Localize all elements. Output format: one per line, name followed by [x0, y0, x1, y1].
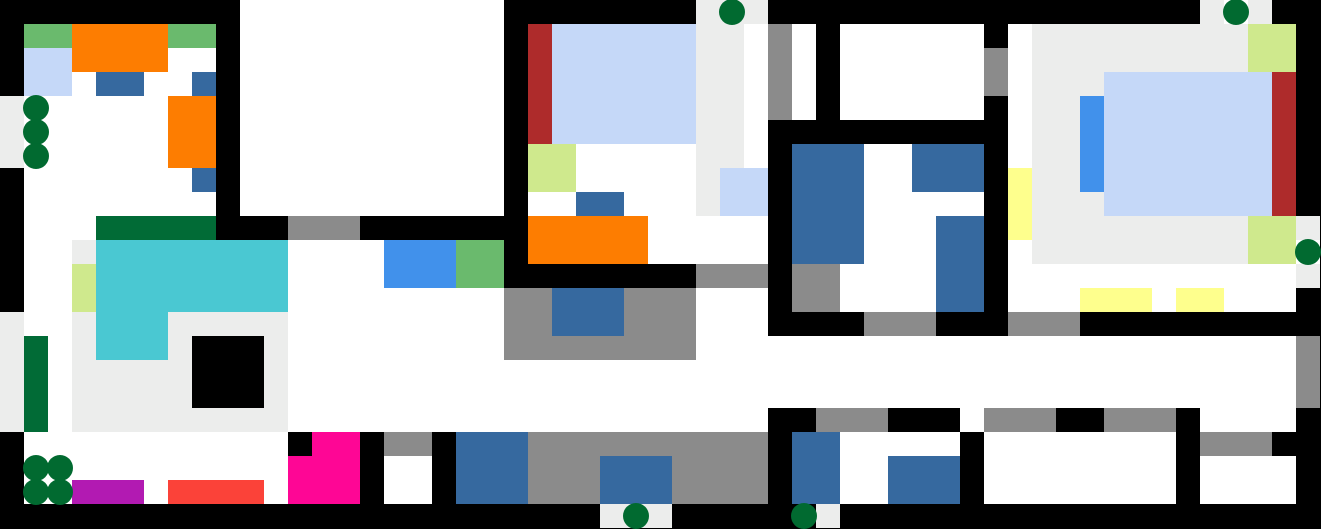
tile-floor-light-gray [1128, 240, 1152, 264]
tile-floor-white [912, 288, 936, 312]
tile-blue-furniture [936, 480, 960, 504]
tile-magenta-furniture [312, 456, 336, 480]
tile-floor-white [264, 72, 288, 96]
tile-gray-rug [648, 312, 672, 336]
tile-floor-white [72, 432, 96, 456]
tile-floor-white [1032, 264, 1056, 288]
tile-floor-white [528, 408, 552, 432]
tile-floor-light-gray [216, 408, 240, 432]
tile-floor-white [216, 432, 240, 456]
tile-floor-white [1080, 384, 1104, 408]
tile-floor-white [504, 384, 528, 408]
tile-gray-rug [600, 432, 624, 456]
tile-floor-white [336, 72, 360, 96]
tile-red-mat [192, 480, 216, 504]
tile-orange-furniture [576, 216, 600, 240]
tile-gray-rug [528, 456, 552, 480]
tile-floor-white [384, 96, 408, 120]
tile-floor-white [120, 96, 144, 120]
tile-floor-white [600, 408, 624, 432]
tile-floor-white [456, 384, 480, 408]
tile-floor-white [648, 360, 672, 384]
tile-blue-furniture [960, 264, 984, 288]
tile-floor-white [312, 0, 336, 24]
tile-gray-rug [1200, 432, 1224, 456]
tile-lavender-bed [24, 72, 48, 96]
tile-floor-white [480, 48, 504, 72]
tile-floor-white [576, 168, 600, 192]
tile-floor-white [1008, 432, 1032, 456]
tile-floor-white [1200, 264, 1224, 288]
tile-floor-white [264, 168, 288, 192]
tree-icon [23, 95, 49, 121]
tile-floor-light-gray [240, 312, 264, 336]
tile-floor-white [1056, 432, 1080, 456]
tile-floor-white [1032, 288, 1056, 312]
tile-floor-light-gray [96, 384, 120, 408]
tile-azure-rug [384, 240, 408, 264]
tile-lavender-bed [1128, 72, 1152, 96]
tile-floor-white [480, 144, 504, 168]
tile-floor-white [432, 144, 456, 168]
tile-floor-white [792, 72, 816, 96]
tile-lavender-bed [1248, 72, 1272, 96]
tile-cyan-pool [240, 264, 264, 288]
tile-floor-white [48, 288, 72, 312]
tile-gray-rug [720, 480, 744, 504]
tile-floor-white [48, 360, 72, 384]
tile-gray-rug [648, 288, 672, 312]
tile-floor-white [864, 336, 888, 360]
tile-floor-light-gray [1200, 0, 1224, 24]
tile-floor-white [528, 192, 552, 216]
tile-maroon-strip [1272, 72, 1296, 96]
tile-floor-white [720, 288, 744, 312]
tile-floor-white [1008, 24, 1032, 48]
tile-floor-light-gray [1176, 24, 1200, 48]
tile-floor-white [312, 96, 336, 120]
tile-lavender-bed [1248, 168, 1272, 192]
tile-floor-white [720, 408, 744, 432]
tile-lavender-bed [1176, 144, 1200, 168]
tile-cyan-pool [96, 240, 120, 264]
tile-floor-light-gray [1056, 120, 1080, 144]
tile-floor-white [432, 360, 456, 384]
tile-floor-light-gray [1128, 216, 1152, 240]
tile-darkgreen-counter [24, 360, 48, 384]
tile-floor-white [48, 96, 72, 120]
tile-maroon-strip [1272, 120, 1296, 144]
tile-floor-white [288, 408, 312, 432]
tile-cyan-pool [240, 240, 264, 264]
tile-floor-white [624, 360, 648, 384]
tile-floor-white [1272, 408, 1296, 432]
tile-floor-light-gray [1152, 48, 1176, 72]
tile-cyan-pool [192, 264, 216, 288]
tile-gray-rug [744, 456, 768, 480]
tile-floor-white [480, 0, 504, 24]
tile-lavender-bed [1176, 72, 1200, 96]
tile-floor-white [240, 432, 264, 456]
tile-blue-furniture [120, 72, 144, 96]
tile-gray-rug [720, 432, 744, 456]
tile-floor-white [1224, 264, 1248, 288]
tile-floor-white [120, 168, 144, 192]
tile-gray-rug [408, 432, 432, 456]
tile-blue-furniture [888, 480, 912, 504]
tile-floor-white [648, 144, 672, 168]
tile-floor-white [408, 456, 432, 480]
tile-floor-light-gray [168, 360, 192, 384]
tile-blue-furniture [840, 216, 864, 240]
tile-azure-rug [432, 264, 456, 288]
tile-blue-furniture [840, 168, 864, 192]
tile-blue-furniture [792, 144, 816, 168]
tile-floor-light-gray [720, 24, 744, 48]
tile-floor-light-gray [696, 168, 720, 192]
tile-blue-furniture [816, 456, 840, 480]
tile-floor-white [144, 456, 168, 480]
tile-palegreen-mat [1272, 24, 1296, 48]
tile-floor-white [72, 72, 96, 96]
tile-floor-white [384, 144, 408, 168]
tile-green-mat [480, 240, 504, 264]
tile-floor-white [120, 432, 144, 456]
tile-floor-white [48, 144, 72, 168]
tile-floor-white [360, 240, 384, 264]
tile-floor-white [1080, 432, 1104, 456]
tile-gray-rug [696, 432, 720, 456]
tile-floor-white [888, 168, 912, 192]
tile-floor-white [1104, 384, 1128, 408]
tile-floor-white [792, 48, 816, 72]
tile-lavender-bed [1224, 144, 1248, 168]
tile-floor-white [264, 144, 288, 168]
tile-lavender-bed [672, 72, 696, 96]
tile-floor-white [408, 96, 432, 120]
tile-cyan-pool [120, 288, 144, 312]
tile-floor-white [912, 384, 936, 408]
tile-floor-white [984, 360, 1008, 384]
tile-floor-white [720, 360, 744, 384]
tile-orange-furniture [576, 240, 600, 264]
tile-floor-light-gray [72, 312, 96, 336]
tile-gray-rug [1296, 336, 1320, 360]
tile-floor-white [864, 456, 888, 480]
tile-lavender-bed [744, 192, 768, 216]
tile-floor-white [408, 480, 432, 504]
floorplan-canvas[interactable] [0, 0, 1321, 529]
tile-lavender-bed [1200, 72, 1224, 96]
tile-palegreen-mat [72, 264, 96, 288]
tile-lavender-bed [1224, 168, 1248, 192]
tile-floor-white [384, 312, 408, 336]
tile-floor-white [696, 240, 720, 264]
tile-palegreen-mat [1248, 216, 1272, 240]
tile-floor-white [288, 192, 312, 216]
tile-blue-furniture [480, 432, 504, 456]
tile-gray-rug [528, 288, 552, 312]
tile-lavender-bed [672, 96, 696, 120]
tile-gray-rug [624, 432, 648, 456]
tile-floor-white [1104, 480, 1128, 504]
tile-gray-rug [1104, 408, 1128, 432]
tile-floor-white [864, 384, 888, 408]
tile-gray-rug [1248, 432, 1272, 456]
tile-cyan-pool [96, 264, 120, 288]
tile-darkgreen-counter [144, 216, 168, 240]
tile-floor-light-gray [1032, 96, 1056, 120]
tile-blue-furniture [576, 192, 600, 216]
tile-floor-light-gray [1056, 96, 1080, 120]
tile-floor-white [816, 336, 840, 360]
tile-floor-white [888, 144, 912, 168]
tile-floor-white [648, 408, 672, 432]
tile-floor-white [720, 384, 744, 408]
tile-floor-white [408, 48, 432, 72]
tile-purple-mat [96, 480, 120, 504]
tile-floor-white [1224, 288, 1248, 312]
tile-floor-white [384, 360, 408, 384]
tile-floor-light-gray [0, 336, 24, 360]
tile-floor-white [312, 264, 336, 288]
tile-maroon-strip [1272, 192, 1296, 216]
tile-floor-white [144, 72, 168, 96]
tile-floor-white [576, 408, 600, 432]
tile-floor-white [1008, 264, 1032, 288]
tile-floor-white [696, 360, 720, 384]
tile-gray-rug [624, 288, 648, 312]
tile-floor-light-gray [1104, 216, 1128, 240]
tile-floor-white [168, 48, 192, 72]
tile-blue-furniture [504, 432, 528, 456]
tile-gray-rug [312, 216, 336, 240]
tile-floor-white [1056, 288, 1080, 312]
tile-floor-white [1128, 336, 1152, 360]
tile-azure-rug [1080, 120, 1104, 144]
tile-floor-light-gray [96, 360, 120, 384]
tile-floor-white [888, 432, 912, 456]
tile-floor-white [1128, 480, 1152, 504]
tile-magenta-furniture [336, 456, 360, 480]
tile-floor-white [1152, 432, 1176, 456]
tile-floor-light-gray [1224, 216, 1248, 240]
tile-lavender-bed [1176, 168, 1200, 192]
tile-floor-white [384, 120, 408, 144]
tile-magenta-furniture [336, 480, 360, 504]
tile-lavender-bed [1128, 96, 1152, 120]
tile-gray-rug [744, 264, 768, 288]
tile-floor-white [912, 96, 936, 120]
tile-gray-rug [384, 432, 408, 456]
tile-palegreen-mat [528, 144, 552, 168]
tile-gray-rug [528, 480, 552, 504]
tile-floor-white [192, 192, 216, 216]
tile-floor-white [984, 480, 1008, 504]
tile-gray-rug [552, 336, 576, 360]
tile-floor-white [936, 360, 960, 384]
tile-floor-white [264, 120, 288, 144]
tile-lavender-bed [1104, 192, 1128, 216]
tile-floor-white [1008, 96, 1032, 120]
tile-darkgreen-counter [168, 216, 192, 240]
tile-floor-white [912, 336, 936, 360]
tile-floor-light-gray [1080, 216, 1104, 240]
tile-floor-white [1032, 360, 1056, 384]
tile-floor-white [360, 360, 384, 384]
tile-floor-light-gray [264, 360, 288, 384]
tile-floor-white [480, 168, 504, 192]
tile-lavender-bed [1152, 72, 1176, 96]
tile-floor-white [1272, 288, 1296, 312]
tile-floor-light-gray [1032, 120, 1056, 144]
tile-gray-rug [768, 72, 792, 96]
tile-floor-white [408, 144, 432, 168]
tile-floor-light-gray [1080, 72, 1104, 96]
tile-floor-white [576, 384, 600, 408]
tile-floor-white [384, 336, 408, 360]
tile-floor-white [480, 192, 504, 216]
tile-floor-light-gray [696, 72, 720, 96]
tile-floor-white [1176, 264, 1200, 288]
tile-blue-furniture [792, 240, 816, 264]
tile-cyan-pool [144, 264, 168, 288]
tile-lavender-bed [1104, 72, 1128, 96]
tile-lavender-bed [624, 72, 648, 96]
tile-yellow-mat [1128, 288, 1152, 312]
tile-floor-light-gray [1200, 240, 1224, 264]
tile-gray-rug [984, 48, 1008, 72]
tile-floor-white [264, 24, 288, 48]
tile-floor-white [384, 480, 408, 504]
tile-floor-white [672, 192, 696, 216]
tile-floor-white [1032, 432, 1056, 456]
tile-floor-white [360, 312, 384, 336]
tile-gray-rug [840, 408, 864, 432]
tile-floor-light-gray [696, 24, 720, 48]
tile-floor-white [1056, 264, 1080, 288]
tile-maroon-strip [528, 48, 552, 72]
tile-floor-light-gray [1104, 240, 1128, 264]
tile-floor-light-gray [720, 120, 744, 144]
tile-lavender-bed [1128, 120, 1152, 144]
tile-lavender-bed [48, 72, 72, 96]
tile-blue-furniture [936, 216, 960, 240]
tile-floor-white [432, 96, 456, 120]
tile-floor-white [1008, 240, 1032, 264]
tile-floor-light-gray [0, 96, 24, 120]
tile-floor-light-gray [720, 48, 744, 72]
tile-floor-white [1152, 480, 1176, 504]
tile-gray-rug [624, 312, 648, 336]
tile-blue-furniture [888, 456, 912, 480]
tile-floor-white [360, 408, 384, 432]
tile-floor-white [744, 288, 768, 312]
tile-floor-white [384, 408, 408, 432]
tile-floor-white [432, 192, 456, 216]
tile-floor-white [384, 24, 408, 48]
tile-floor-white [360, 96, 384, 120]
tile-floor-white [480, 408, 504, 432]
tile-floor-white [240, 24, 264, 48]
tile-gray-rug [888, 312, 912, 336]
tile-lavender-bed [1128, 168, 1152, 192]
tile-lavender-bed [552, 72, 576, 96]
tile-floor-white [408, 24, 432, 48]
tile-floor-white [336, 48, 360, 72]
tile-yellow-mat [1008, 216, 1032, 240]
tile-gray-rug [816, 408, 840, 432]
tile-floor-light-gray [1200, 216, 1224, 240]
tile-darkgreen-counter [24, 384, 48, 408]
tile-floor-light-gray [1104, 24, 1128, 48]
tile-floor-white [1248, 408, 1272, 432]
tile-floor-white [864, 72, 888, 96]
tile-floor-white [240, 168, 264, 192]
tile-blue-furniture [792, 168, 816, 192]
tile-floor-white [1128, 432, 1152, 456]
tile-floor-white [672, 168, 696, 192]
tile-floor-white [24, 216, 48, 240]
tile-purple-mat [120, 480, 144, 504]
tile-floor-white [936, 72, 960, 96]
tile-floor-white [480, 360, 504, 384]
tile-blue-furniture [960, 216, 984, 240]
tile-gray-rug [600, 336, 624, 360]
tile-floor-light-gray [1056, 192, 1080, 216]
tile-gray-rug [816, 288, 840, 312]
tile-floor-white [312, 288, 336, 312]
tile-blue-furniture [816, 216, 840, 240]
tile-floor-white [336, 240, 360, 264]
tile-orange-furniture [144, 24, 168, 48]
tree-icon [1295, 239, 1321, 265]
tile-floor-white [336, 144, 360, 168]
tile-floor-white [1272, 360, 1296, 384]
tile-floor-light-gray [696, 120, 720, 144]
tile-floor-white [1272, 264, 1296, 288]
tile-floor-white [264, 480, 288, 504]
tile-orange-furniture [120, 48, 144, 72]
tile-gray-rug [528, 312, 552, 336]
tile-floor-light-gray [696, 144, 720, 168]
tile-floor-white [648, 384, 672, 408]
tile-cyan-pool [120, 312, 144, 336]
tile-lavender-bed [1128, 144, 1152, 168]
tile-floor-white [384, 288, 408, 312]
tile-floor-white [840, 48, 864, 72]
tile-blue-furniture [504, 456, 528, 480]
tile-lavender-bed [1200, 144, 1224, 168]
tile-darkgreen-counter [192, 216, 216, 240]
tile-floor-light-gray [1032, 24, 1056, 48]
tile-floor-white [96, 144, 120, 168]
tile-lavender-bed [672, 120, 696, 144]
tile-floor-white [456, 24, 480, 48]
tile-floor-white [840, 384, 864, 408]
tile-gray-rug [912, 312, 936, 336]
tile-floor-light-gray [1056, 168, 1080, 192]
tile-cyan-pool [216, 264, 240, 288]
tile-azure-rug [1080, 144, 1104, 168]
tile-floor-white [312, 384, 336, 408]
tile-floor-light-gray [1032, 216, 1056, 240]
tile-maroon-strip [528, 72, 552, 96]
tile-gray-rug [1296, 384, 1320, 408]
tile-floor-white [600, 168, 624, 192]
tile-blue-furniture [912, 168, 936, 192]
tile-floor-white [1200, 336, 1224, 360]
